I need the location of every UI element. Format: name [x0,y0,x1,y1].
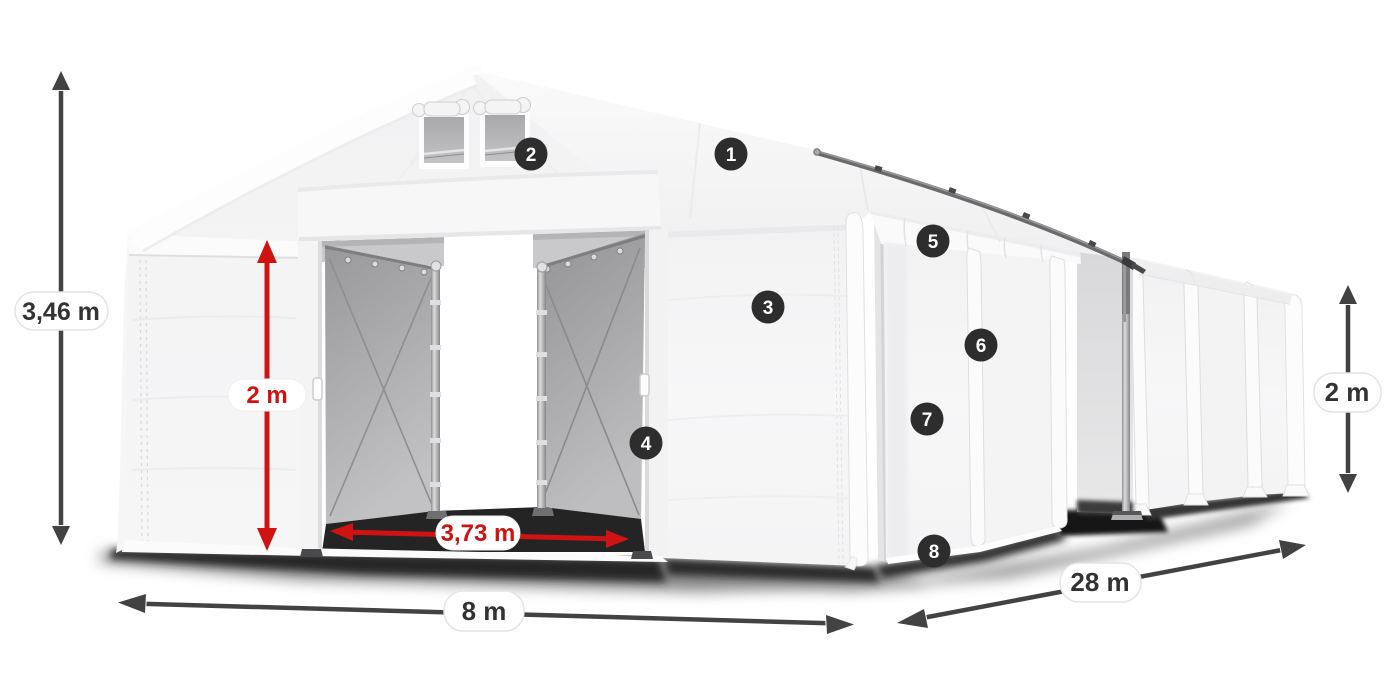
svg-text:28 m: 28 m [1070,567,1129,597]
svg-text:8 m: 8 m [462,596,507,626]
svg-text:7: 7 [922,410,933,431]
svg-text:4: 4 [641,434,652,455]
svg-text:3: 3 [763,298,774,319]
svg-text:5: 5 [928,232,939,253]
svg-text:6: 6 [976,336,987,357]
svg-text:2 m: 2 m [1325,377,1370,407]
svg-text:2 m: 2 m [246,382,287,409]
svg-text:1: 1 [726,145,737,166]
svg-text:8: 8 [929,542,940,563]
svg-text:2: 2 [526,145,537,166]
svg-text:3,73 m: 3,73 m [441,520,516,547]
svg-text:3,46 m: 3,46 m [22,298,100,326]
